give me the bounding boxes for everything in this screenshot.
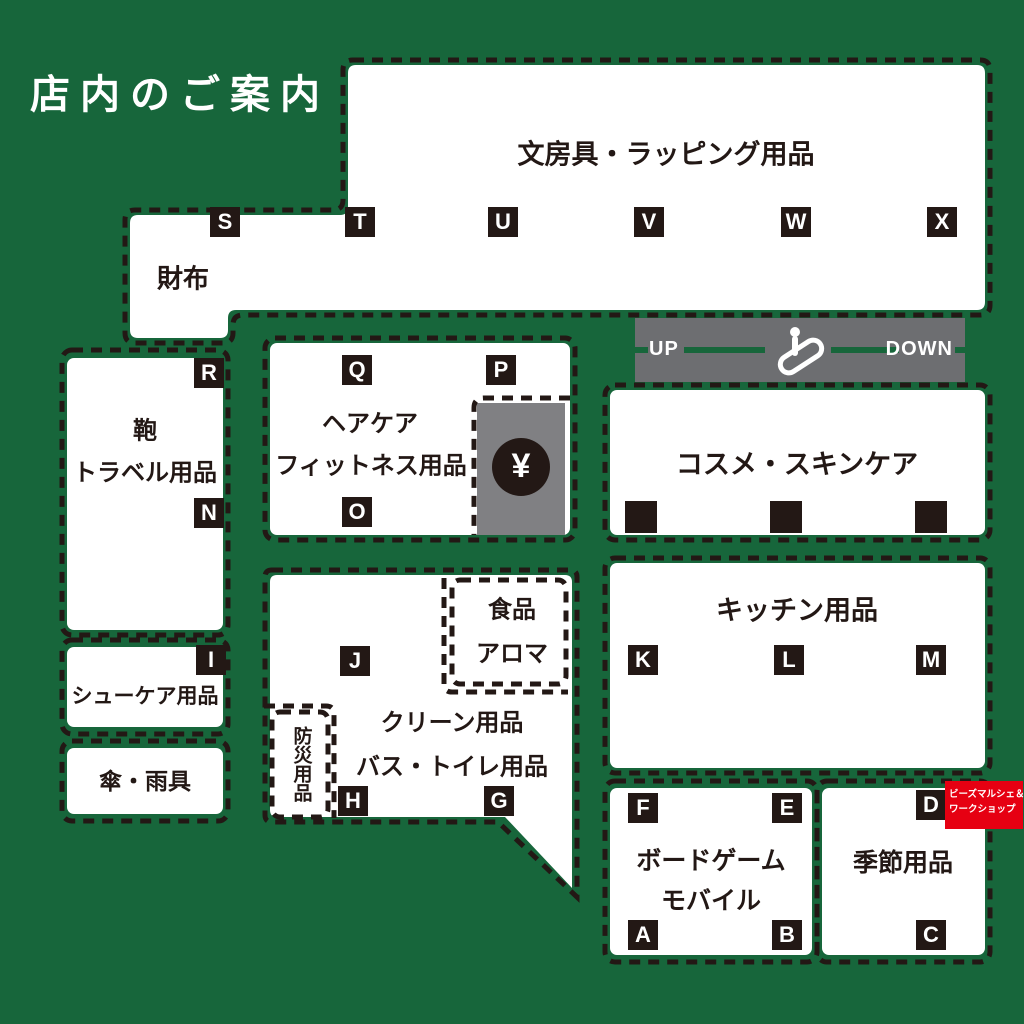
marker-i: I — [196, 645, 226, 675]
marker-w: W — [781, 207, 811, 237]
marker-q: Q — [342, 355, 372, 385]
cash-register-icon: ¥ — [492, 438, 550, 496]
marker-r: R — [194, 358, 224, 388]
marker-h: H — [338, 786, 368, 816]
marker-d: D — [916, 790, 946, 820]
marker-c: C — [916, 920, 946, 950]
escalator-icon — [765, 322, 835, 378]
label-kitchen: キッチン用品 — [716, 589, 878, 628]
marker-m: M — [916, 645, 946, 675]
page-title: 店内のご案内 — [30, 62, 330, 120]
marker-o: O — [342, 497, 372, 527]
beads-marche-badge: ビーズマルシェ＆ ワークショップ — [945, 781, 1023, 829]
marker-p: P — [486, 355, 516, 385]
marker-t: T — [345, 207, 375, 237]
label-cosme: コスメ・スキンケア — [676, 443, 918, 482]
label-haircare-line1: ヘアケア — [322, 404, 418, 439]
marker-j: J — [340, 646, 370, 676]
marker-e: E — [772, 793, 802, 823]
escalator-bar: UP DOWN — [635, 318, 965, 382]
room-bag-shape — [67, 358, 223, 630]
cosme-shelf-square-3 — [915, 501, 947, 533]
escalator-down-label: DOWN — [886, 338, 953, 361]
marker-a: A — [628, 920, 658, 950]
marker-v: V — [634, 207, 664, 237]
label-disaster: 防災用品 — [288, 726, 315, 802]
marker-s: S — [210, 207, 240, 237]
label-shoecare: シューケア用品 — [72, 680, 219, 710]
label-clean-line1: クリーン用品 — [381, 703, 524, 738]
badge-line1: ビーズマルシェ＆ — [949, 787, 1019, 802]
marker-k: K — [628, 645, 658, 675]
label-seasonal: 季節用品 — [853, 843, 953, 879]
label-boardgame-line1: ボードゲーム — [636, 841, 785, 877]
escalator-up-label: UP — [649, 338, 679, 361]
marker-n: N — [194, 498, 224, 528]
label-clean-line2: バス・トイレ用品 — [356, 747, 548, 782]
escalator-line-seg4 — [955, 347, 967, 353]
label-bag-line2: トラベル用品 — [73, 453, 217, 488]
marker-f: F — [628, 793, 658, 823]
label-haircare-line2: フィットネス用品 — [275, 446, 467, 481]
cosme-shelf-square-1 — [625, 501, 657, 533]
escalator-line-seg1 — [633, 347, 648, 353]
label-wallet: 財布 — [157, 259, 209, 296]
marker-b: B — [772, 920, 802, 950]
label-bag-line1: 鞄 — [133, 411, 157, 446]
label-stationery: 文房具・ラッピング用品 — [518, 133, 815, 172]
label-food: 食品 — [488, 590, 536, 625]
escalator-line-seg2 — [684, 347, 765, 353]
badge-line2: ワークショップ — [949, 802, 1019, 817]
marker-x: X — [927, 207, 957, 237]
label-umbrella: 傘・雨具 — [99, 762, 191, 796]
label-aroma: アロマ — [476, 634, 548, 669]
marker-g: G — [484, 786, 514, 816]
label-boardgame-line2: モバイル — [661, 881, 761, 917]
store-floor-map: 店内のご案内 文房具・ラッピング用品 財布 鞄 トラベル用品 シューケア用品 傘… — [0, 0, 1024, 1024]
cosme-shelf-square-2 — [770, 501, 802, 533]
marker-u: U — [488, 207, 518, 237]
marker-l: L — [774, 645, 804, 675]
